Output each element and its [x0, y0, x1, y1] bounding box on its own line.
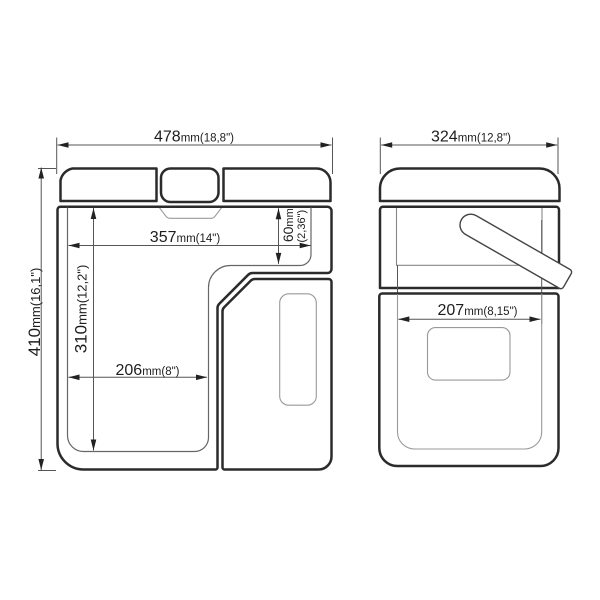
svg-text:410mm(16,1"): 410mm(16,1"): [25, 268, 44, 357]
svg-text:(2,36"): (2,36"): [296, 210, 308, 243]
svg-text:310mm(12,2"): 310mm(12,2"): [72, 265, 91, 354]
